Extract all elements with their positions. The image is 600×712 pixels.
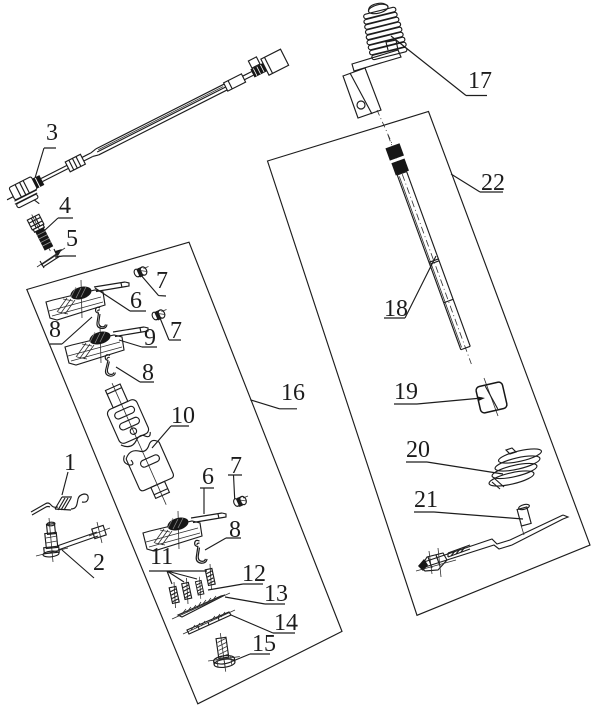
svg-text:14: 14	[274, 610, 298, 636]
svg-text:4: 4	[59, 193, 71, 219]
svg-text:20: 20	[406, 437, 430, 463]
svg-text:12: 12	[242, 561, 266, 587]
svg-text:10: 10	[171, 403, 195, 429]
svg-text:16: 16	[281, 380, 305, 406]
svg-text:6: 6	[202, 464, 214, 490]
svg-text:8: 8	[229, 517, 241, 543]
svg-text:15: 15	[252, 631, 276, 657]
svg-text:17: 17	[468, 68, 492, 94]
svg-text:3: 3	[46, 120, 58, 146]
svg-text:8: 8	[49, 317, 61, 343]
svg-text:2: 2	[93, 550, 105, 576]
svg-text:5: 5	[66, 226, 78, 252]
svg-text:11: 11	[150, 544, 173, 570]
svg-text:7: 7	[156, 268, 168, 294]
svg-text:1: 1	[64, 450, 76, 476]
svg-text:13: 13	[264, 581, 288, 607]
svg-text:21: 21	[414, 487, 438, 513]
svg-text:19: 19	[394, 379, 418, 405]
svg-text:6: 6	[130, 288, 142, 314]
